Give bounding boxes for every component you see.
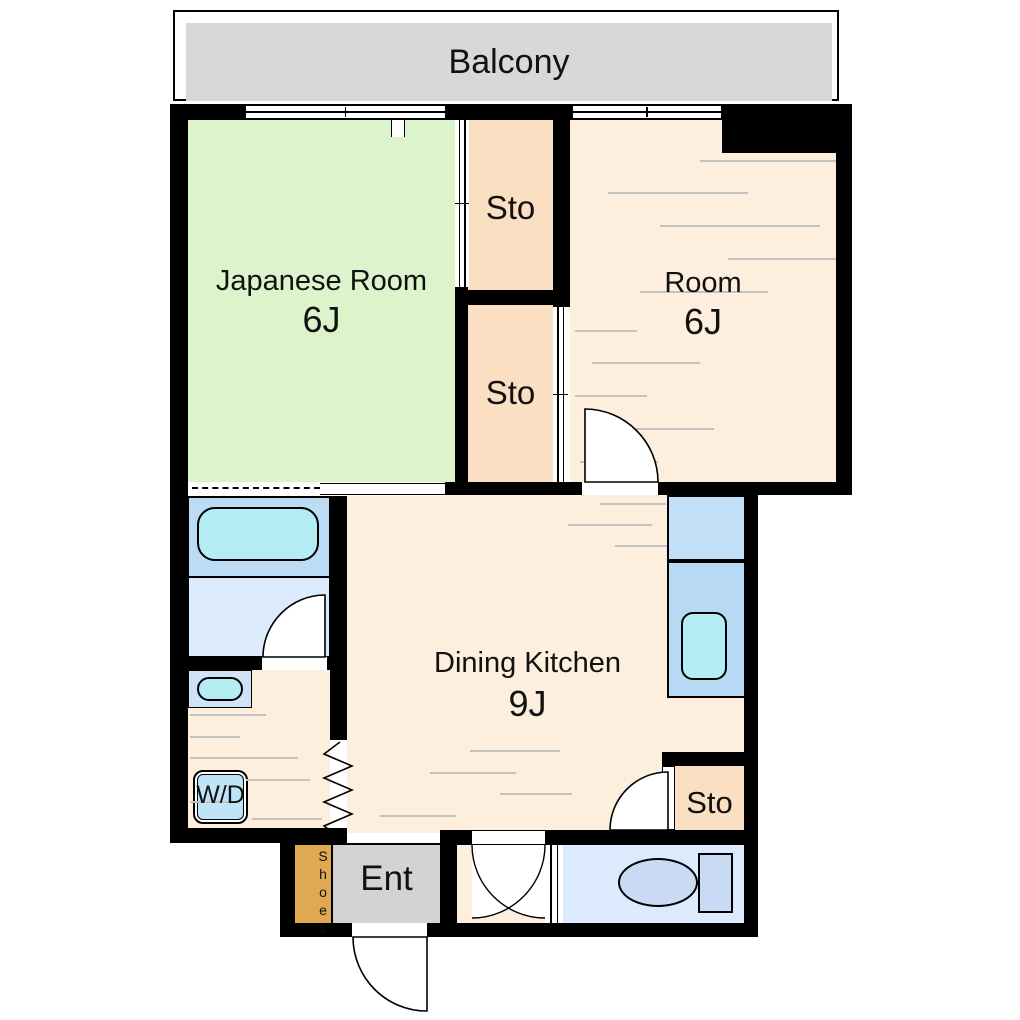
sto-entry-door-arc [610,772,668,830]
accordion-door-zigzag [324,742,352,838]
bath-door-arc [263,595,325,657]
doors-overlay [0,0,1020,1020]
entry-door-arc [353,937,427,1011]
floor-plan: Balcony [0,0,1020,1020]
room-door-arc [585,409,658,482]
